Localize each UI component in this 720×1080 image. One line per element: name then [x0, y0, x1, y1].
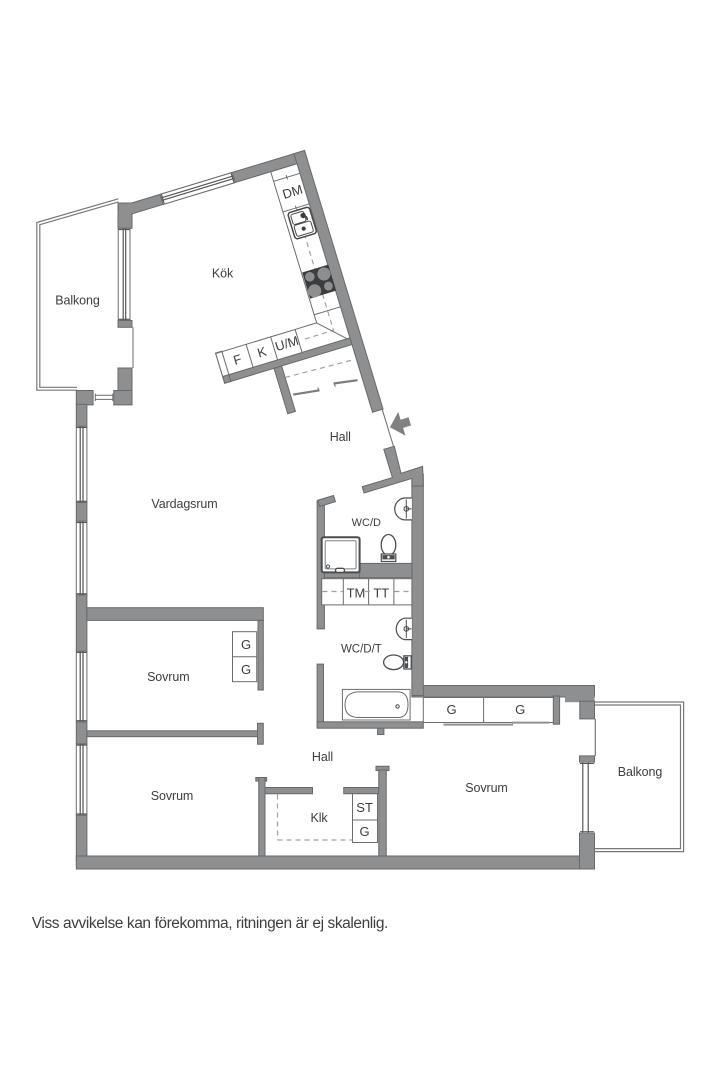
svg-text:Sovrum: Sovrum [151, 789, 193, 803]
svg-text:ST: ST [356, 800, 373, 815]
svg-text:WC/D: WC/D [352, 517, 381, 529]
svg-text:Klk: Klk [310, 811, 328, 825]
svg-text:Balkong: Balkong [55, 294, 100, 308]
svg-text:TT: TT [373, 586, 389, 601]
svg-text:Hall: Hall [312, 750, 333, 764]
svg-text:G: G [360, 824, 370, 839]
svg-text:Sovrum: Sovrum [465, 781, 507, 795]
svg-text:G: G [447, 702, 457, 717]
svg-text:Hall: Hall [330, 430, 351, 444]
svg-text:G: G [515, 702, 525, 717]
svg-text:Sovrum: Sovrum [147, 670, 189, 684]
svg-text:G: G [241, 662, 251, 677]
svg-text:WC/D/T: WC/D/T [341, 643, 382, 655]
svg-text:Vardagsrum: Vardagsrum [151, 497, 217, 511]
svg-text:Viss avvikelse kan förekomma,: Viss avvikelse kan förekomma, ritningen … [32, 915, 388, 932]
svg-text:TM: TM [347, 586, 366, 601]
svg-text:G: G [241, 637, 251, 652]
svg-text:Balkong: Balkong [618, 765, 663, 779]
svg-text:Kök: Kök [212, 267, 234, 281]
